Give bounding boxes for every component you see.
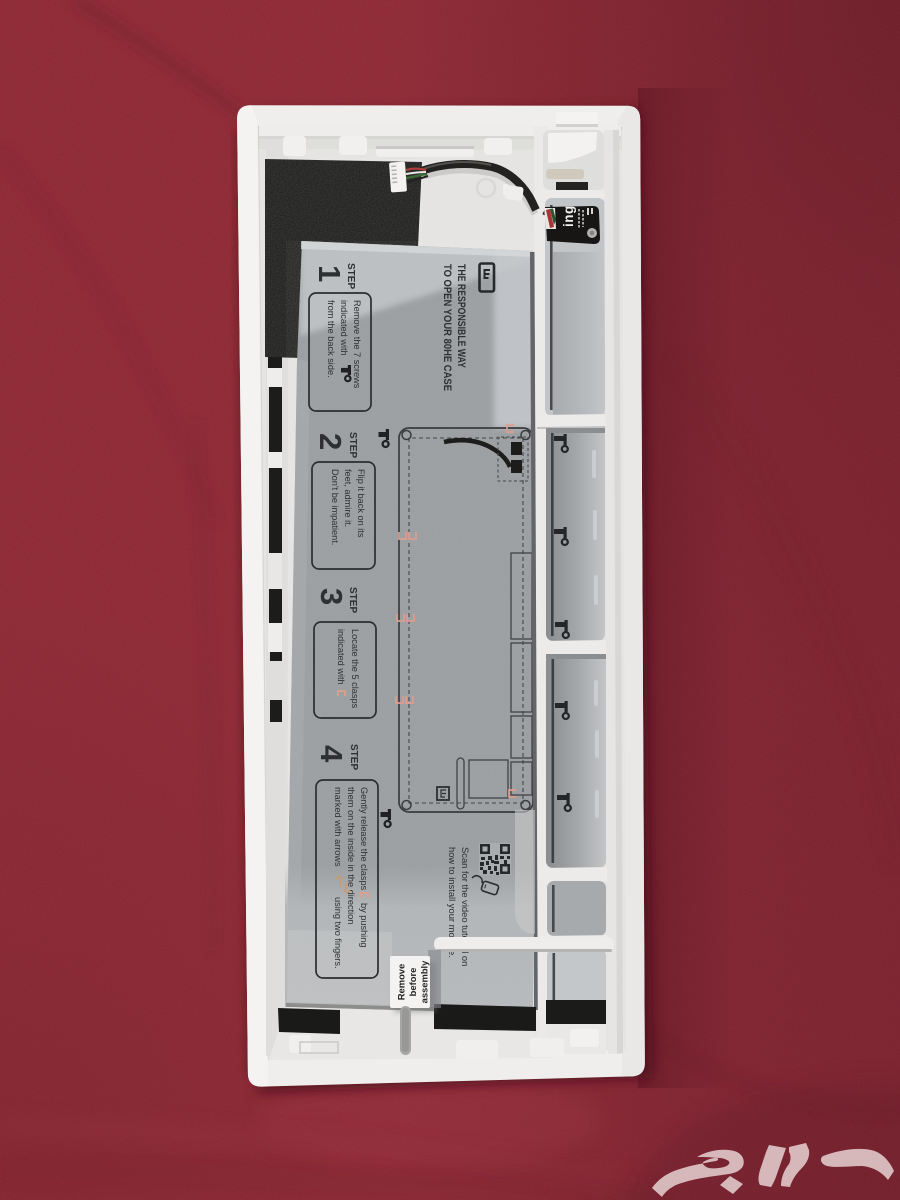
svg-text:TO OPEN YOUR 80HE CASE: TO OPEN YOUR 80HE CASE [441,264,453,391]
svg-text:1: 1 [312,265,347,282]
svg-text:by pushing: by pushing [359,903,369,947]
svg-text:them on the inside in the dire: them on the inside in the direction [346,787,356,924]
svg-text:assembly: assembly [419,960,430,1004]
svg-text:ing: ing [561,205,576,227]
svg-text:THE RESPONSIBLE WAY: THE RESPONSIBLE WAY [455,264,467,369]
svg-text:Gently release the clasps: Gently release the clasps [359,787,369,891]
svg-text:feet, admire it.: feet, admire it. [343,469,353,527]
svg-text:2: 2 [313,433,348,450]
svg-text:using two fingers.: using two fingers. [333,897,343,969]
svg-text:from the back side.: from the back side. [326,300,336,378]
svg-text:before: before [407,968,418,997]
svg-text:Locate the 5 clasps: Locate the 5 clasps [350,629,360,709]
svg-text:3: 3 [314,588,349,605]
svg-text:indicated with: indicated with [339,300,349,356]
svg-text:Remove the 7 screws: Remove the 7 screws [352,300,362,389]
svg-text:Flip it back on its: Flip it back on its [356,469,366,538]
svg-text:marked with arrows: marked with arrows [333,787,343,867]
svg-text:Don't be impatient.: Don't be impatient. [330,469,340,545]
svg-text:4: 4 [314,745,349,763]
svg-text:indicated with: indicated with [336,629,346,685]
svg-text:Remove: Remove [396,964,407,1000]
